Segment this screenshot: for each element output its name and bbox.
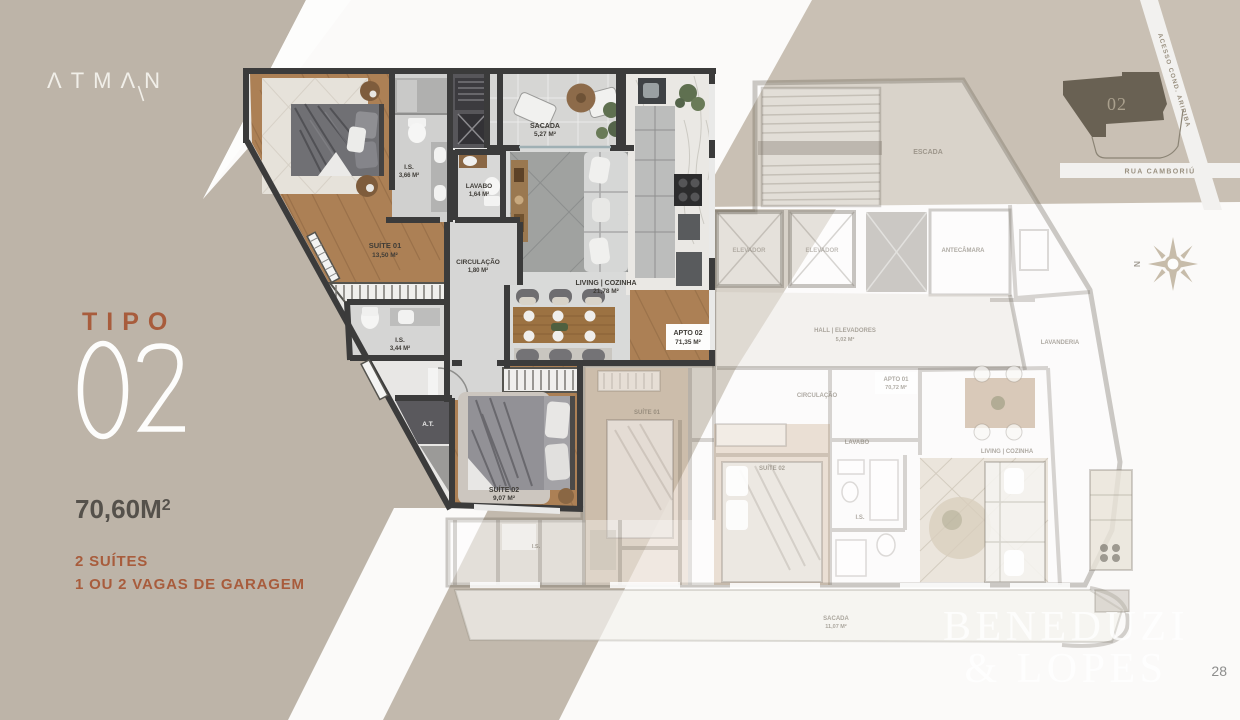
svg-text:& LOPES: & LOPES xyxy=(964,646,1167,692)
svg-text:TIPO: TIPO xyxy=(82,308,176,336)
svg-text:21,78 M²: 21,78 M² xyxy=(593,288,619,295)
svg-text:1,80 M²: 1,80 M² xyxy=(468,267,488,274)
svg-text:1,64 M²: 1,64 M² xyxy=(469,191,489,198)
svg-text:71,35 M²: 71,35 M² xyxy=(675,339,701,346)
svg-text:LIVING | COZINHA: LIVING | COZINHA xyxy=(981,449,1034,455)
svg-text:ELEVADOR: ELEVADOR xyxy=(806,248,840,254)
svg-text:SACADA: SACADA xyxy=(823,616,849,622)
svg-text:HALL | ELEVADORES: HALL | ELEVADORES xyxy=(814,328,876,334)
svg-text:1 OU 2 VAGAS DE GARAGEM: 1 OU 2 VAGAS DE GARAGEM xyxy=(75,576,305,593)
svg-text:LAVABO: LAVABO xyxy=(466,183,492,190)
svg-text:BENEDUZI: BENEDUZI xyxy=(943,604,1189,650)
svg-text:SUÍTE 02: SUÍTE 02 xyxy=(489,485,519,494)
svg-text:I.S.: I.S. xyxy=(395,337,405,344)
svg-text:CIRCULAÇÃO: CIRCULAÇÃO xyxy=(456,257,500,266)
svg-text:70,60M2: 70,60M2 xyxy=(75,494,171,524)
svg-text:13,50 M²: 13,50 M² xyxy=(372,252,398,259)
svg-text:RUA CAMBORIÚ: RUA CAMBORIÚ xyxy=(1125,167,1196,176)
svg-text:ELEVADOR: ELEVADOR xyxy=(733,248,767,254)
svg-text:I.S.: I.S. xyxy=(855,515,864,521)
svg-text:5,02 M²: 5,02 M² xyxy=(836,336,855,343)
svg-text:9,07 M²: 9,07 M² xyxy=(493,495,516,502)
svg-text:ANTECÂMARA: ANTECÂMARA xyxy=(942,247,986,254)
svg-text:LIVING | COZINHA: LIVING | COZINHA xyxy=(575,280,636,287)
svg-text:A.T.: A.T. xyxy=(422,421,434,428)
svg-text:3,44 M²: 3,44 M² xyxy=(390,345,410,352)
svg-text:SACADA: SACADA xyxy=(530,123,560,130)
svg-text:APTO 02: APTO 02 xyxy=(673,330,702,337)
svg-text:5,27 M²: 5,27 M² xyxy=(534,131,557,138)
svg-text:APTO 01: APTO 01 xyxy=(884,377,910,383)
svg-text:SUÍTE 01: SUÍTE 01 xyxy=(369,241,402,250)
svg-text:ΛTMΛN: ΛTMΛN xyxy=(47,68,169,93)
svg-text:2 SUÍTES: 2 SUÍTES xyxy=(75,553,148,570)
svg-text:3,66 M²: 3,66 M² xyxy=(399,172,419,179)
svg-text:SUÍTE 02: SUÍTE 02 xyxy=(759,464,786,472)
svg-text:70,72 M²: 70,72 M² xyxy=(885,384,907,391)
svg-text:ESCADA: ESCADA xyxy=(913,149,943,156)
svg-text:I.S.: I.S. xyxy=(532,544,541,550)
svg-text:02: 02 xyxy=(1107,94,1127,114)
svg-text:I.S.: I.S. xyxy=(404,164,414,171)
svg-text:11,07 M²: 11,07 M² xyxy=(825,623,847,630)
svg-text:LAVANDERIA: LAVANDERIA xyxy=(1041,340,1080,346)
svg-text:N: N xyxy=(1132,261,1142,267)
svg-text:SUÍTE 01: SUÍTE 01 xyxy=(634,408,661,416)
svg-text:28: 28 xyxy=(1211,663,1227,679)
svg-text:CIRCULAÇÃO: CIRCULAÇÃO xyxy=(797,392,838,399)
svg-text:LAVABO: LAVABO xyxy=(845,440,870,446)
